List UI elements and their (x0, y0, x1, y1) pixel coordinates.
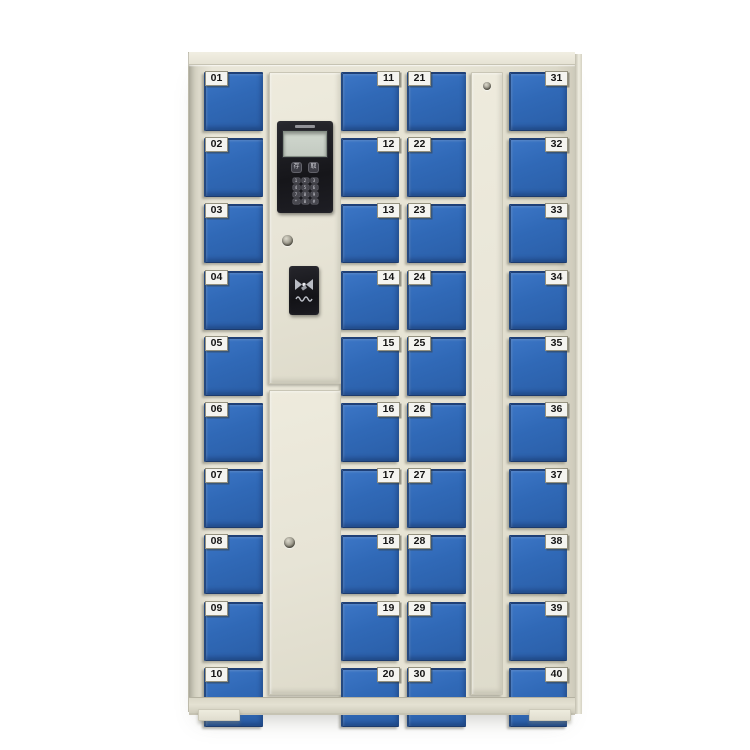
locker-column-4: 31323334353637383940 (509, 72, 567, 734)
door-number-label: 40 (545, 667, 568, 682)
door-number-label: 27 (408, 468, 431, 483)
door-number-label: 07 (205, 468, 228, 483)
locker-door-03[interactable]: 03 (204, 204, 263, 263)
locker-door-07[interactable]: 07 (204, 469, 263, 528)
keypad-key-9[interactable]: 9 (311, 192, 318, 197)
locker-door-37[interactable]: 37 (509, 469, 567, 528)
deposit-button[interactable]: 存 (292, 163, 301, 172)
service-door[interactable] (269, 390, 341, 695)
locker-door-16[interactable]: 16 (341, 403, 399, 462)
locker-door-18[interactable]: 18 (341, 535, 399, 594)
service-door-keyhole-lock-icon (284, 537, 295, 548)
door-number-label: 39 (545, 601, 568, 616)
function-key-row: 存 取 (292, 163, 318, 172)
locker-door-15[interactable]: 15 (341, 337, 399, 396)
keypad-key-7[interactable]: 7 (293, 192, 300, 197)
door-number-label: 10 (205, 667, 228, 682)
keypad-key-2[interactable]: 2 (302, 178, 309, 183)
retrieve-button[interactable]: 取 (309, 163, 318, 172)
door-number-label: 05 (205, 336, 228, 351)
locker-door-24[interactable]: 24 (407, 271, 466, 330)
locker-door-34[interactable]: 34 (509, 271, 567, 330)
locker-door-14[interactable]: 14 (341, 271, 399, 330)
cabinet-side-panel (575, 54, 582, 714)
card-reader[interactable] (289, 266, 319, 315)
control-door-keyhole-lock-icon (282, 235, 293, 246)
door-number-label: 25 (408, 336, 431, 351)
strip-keyhole-lock-icon (483, 82, 491, 90)
locker-door-26[interactable]: 26 (407, 403, 466, 462)
door-number-label: 01 (205, 71, 228, 86)
door-number-label: 16 (377, 402, 400, 417)
locker-door-02[interactable]: 02 (204, 138, 263, 197)
locker-door-05[interactable]: 05 (204, 337, 263, 396)
door-number-label: 24 (408, 270, 431, 285)
locker-door-21[interactable]: 21 (407, 72, 466, 131)
keypad-key-5[interactable]: 5 (302, 185, 309, 190)
door-number-label: 17 (377, 468, 400, 483)
locker-door-27[interactable]: 27 (407, 469, 466, 528)
locker-door-17[interactable]: 17 (341, 469, 399, 528)
door-number-label: 34 (545, 270, 568, 285)
locker-door-22[interactable]: 22 (407, 138, 466, 197)
locker-column-2: 11121314151617181920 (341, 72, 399, 734)
door-number-label: 23 (408, 203, 431, 218)
door-number-label: 03 (205, 203, 228, 218)
locker-door-09[interactable]: 09 (204, 602, 263, 661)
cabinet-top-edge (189, 52, 575, 65)
keypad-key-3[interactable]: 3 (311, 178, 318, 183)
locker-door-11[interactable]: 11 (341, 72, 399, 131)
locker-door-29[interactable]: 29 (407, 602, 466, 661)
door-number-label: 26 (408, 402, 431, 417)
locker-door-19[interactable]: 19 (341, 602, 399, 661)
locker-cabinet: 01020304050607080910 1112131415161718192… (188, 52, 575, 712)
locker-door-28[interactable]: 28 (407, 535, 466, 594)
door-number-label: 11 (377, 71, 400, 86)
door-number-label: 08 (205, 534, 228, 549)
panel-screen (283, 131, 327, 157)
door-number-label: 12 (377, 137, 400, 152)
lock-strip-door[interactable] (471, 72, 503, 695)
door-number-label: 21 (408, 71, 431, 86)
door-number-label: 33 (545, 203, 568, 218)
door-number-label: 15 (377, 336, 400, 351)
door-number-label: 22 (408, 137, 431, 152)
keypad-key-8[interactable]: 8 (302, 192, 309, 197)
locker-door-39[interactable]: 39 (509, 602, 567, 661)
door-number-label: 38 (545, 534, 568, 549)
keypad-key-*[interactable]: * (293, 199, 300, 204)
door-number-label: 36 (545, 402, 568, 417)
door-number-label: 30 (408, 667, 431, 682)
door-number-label: 14 (377, 270, 400, 285)
door-number-label: 13 (377, 203, 400, 218)
locker-door-23[interactable]: 23 (407, 204, 466, 263)
locker-door-12[interactable]: 12 (341, 138, 399, 197)
locker-door-06[interactable]: 06 (204, 403, 263, 462)
keypad-key-0[interactable]: 0 (302, 199, 309, 204)
door-number-label: 31 (545, 71, 568, 86)
cabinet-foot-right (529, 709, 571, 721)
locker-column-1: 01020304050607080910 (204, 72, 263, 734)
door-number-label: 37 (545, 468, 568, 483)
door-number-label: 02 (205, 137, 228, 152)
locker-door-35[interactable]: 35 (509, 337, 567, 396)
door-number-label: 04 (205, 270, 228, 285)
locker-door-13[interactable]: 13 (341, 204, 399, 263)
rfid-swipe-icon (294, 276, 314, 306)
panel-brand-text (295, 125, 315, 128)
locker-door-01[interactable]: 01 (204, 72, 263, 131)
locker-door-31[interactable]: 31 (509, 72, 567, 131)
locker-door-08[interactable]: 08 (204, 535, 263, 594)
door-number-label: 32 (545, 137, 568, 152)
door-number-label: 28 (408, 534, 431, 549)
locker-door-38[interactable]: 38 (509, 535, 567, 594)
keypad: 123456789*0# (293, 178, 318, 204)
product-photo-scene: 01020304050607080910 1112131415161718192… (0, 0, 750, 750)
locker-door-33[interactable]: 33 (509, 204, 567, 263)
door-number-label: 19 (377, 601, 400, 616)
door-number-label: 29 (408, 601, 431, 616)
locker-column-3: 21222324252627282930 (407, 72, 466, 734)
control-panel-door[interactable]: 存 取 123456789*0# (269, 72, 341, 384)
control-panel: 存 取 123456789*0# (277, 121, 333, 213)
keypad-key-4[interactable]: 4 (293, 185, 300, 190)
cabinet-base-plinth (189, 697, 575, 715)
door-number-label: 18 (377, 534, 400, 549)
keypad-key-1[interactable]: 1 (293, 178, 300, 183)
locker-door-25[interactable]: 25 (407, 337, 466, 396)
door-number-label: 06 (205, 402, 228, 417)
door-number-label: 20 (377, 667, 400, 682)
keypad-key-#[interactable]: # (311, 199, 318, 204)
cabinet-foot-left (198, 709, 240, 721)
keypad-key-6[interactable]: 6 (311, 185, 318, 190)
locker-door-04[interactable]: 04 (204, 271, 263, 330)
door-number-label: 35 (545, 336, 568, 351)
door-number-label: 09 (205, 601, 228, 616)
locker-door-32[interactable]: 32 (509, 138, 567, 197)
locker-door-36[interactable]: 36 (509, 403, 567, 462)
